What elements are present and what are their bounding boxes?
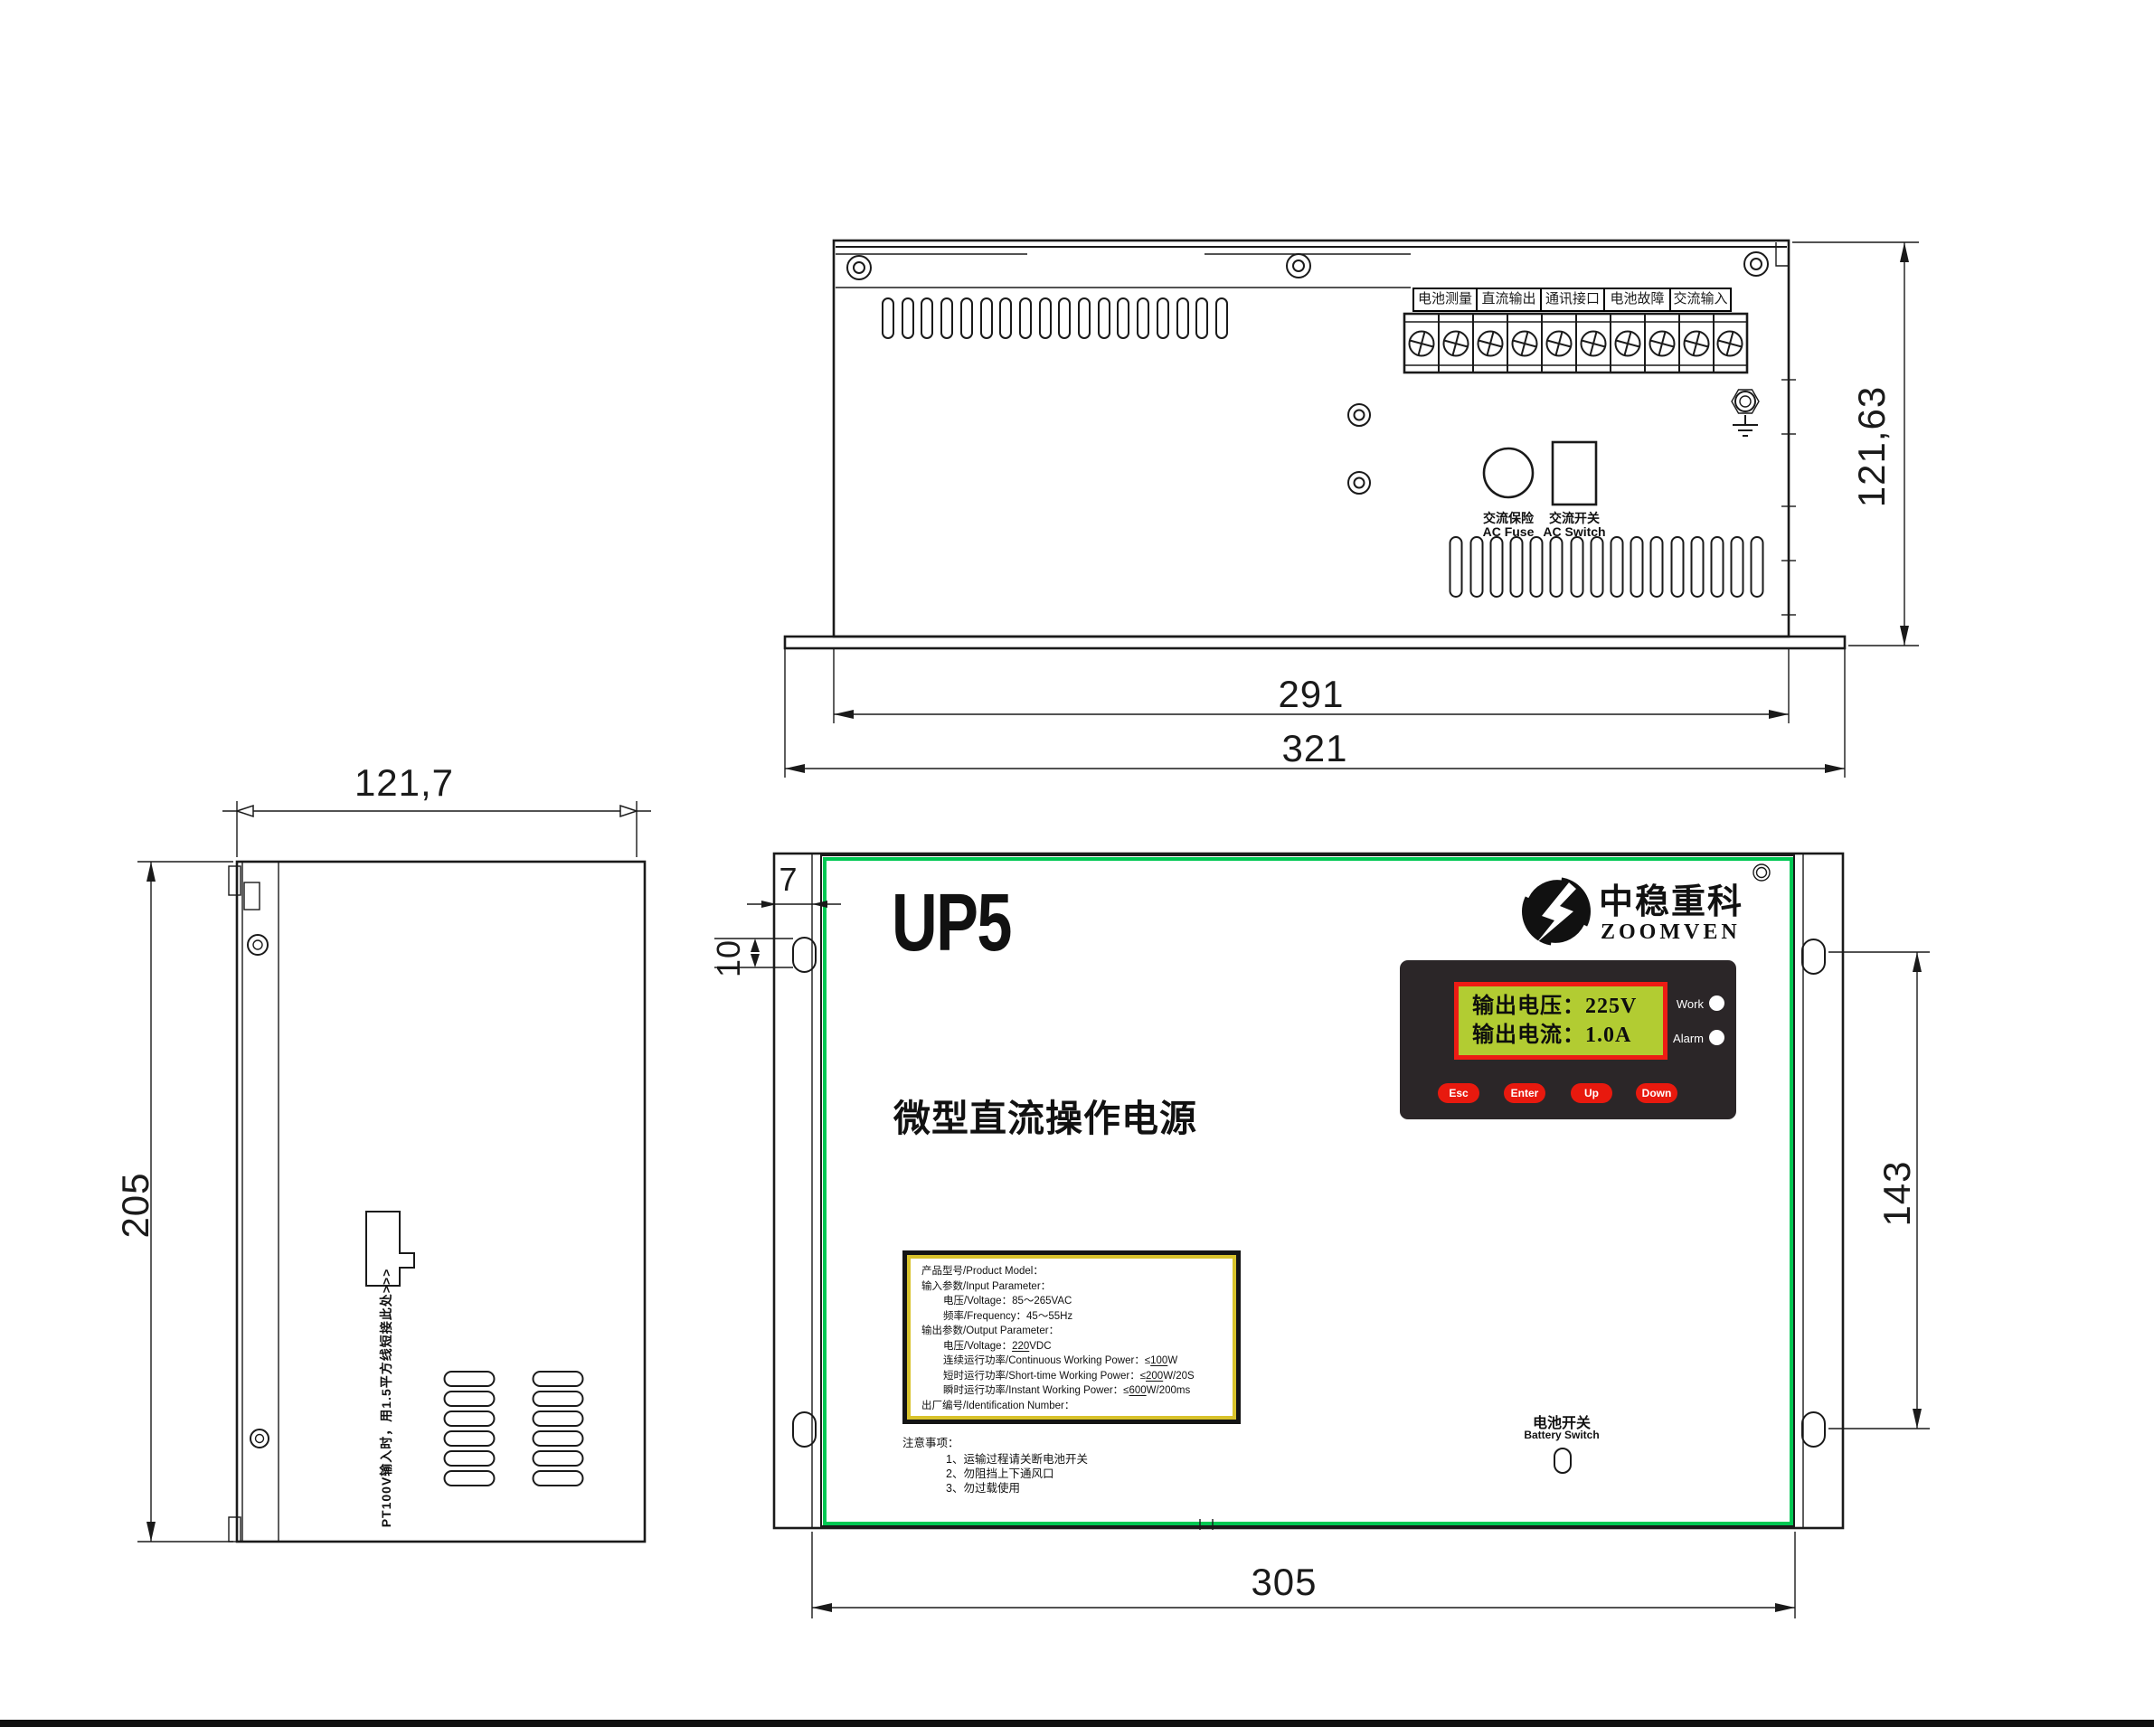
- spec-line: 电压/Voltage：220VDC: [921, 1339, 1236, 1354]
- dim-label-side-height: 205: [114, 1151, 157, 1260]
- technical-drawing-canvas: 电池测量 直流输出 通讯接口 电池故障 交流输入 交流保险 AC Fuse 交流…: [0, 0, 2154, 1736]
- spec-line: 输出参数/Output Parameter：: [921, 1324, 1236, 1339]
- spec-line: 电压/Voltage：85～265VAC: [921, 1294, 1236, 1309]
- terminal-label-comm-port: 通讯接口: [1540, 288, 1605, 312]
- screw-icon: [250, 1429, 269, 1448]
- up-button: Up: [1571, 1083, 1612, 1103]
- spec-line: 短时运行功率/Short-time Working Power：≤200W/20…: [921, 1369, 1236, 1384]
- ground-icon: [1732, 390, 1759, 436]
- screw-icon: [248, 935, 268, 955]
- battery-switch-label-en: Battery Switch: [1512, 1429, 1611, 1441]
- top-vent-slots: [883, 298, 1227, 338]
- dim-label-mount-height: 143: [1875, 1139, 1919, 1248]
- notes-title: 注意事项：: [902, 1436, 959, 1450]
- esc-button: Esc: [1438, 1083, 1479, 1103]
- side-vent-slots: [445, 1372, 583, 1486]
- alarm-led-label: Alarm: [1644, 1032, 1704, 1045]
- front-view-dimensions: [714, 901, 1930, 1618]
- brand-name-cn: 中稳重科: [1599, 884, 1743, 920]
- ac-switch-label-cn: 交流开关: [1520, 512, 1629, 525]
- dim-label-mount-width: 305: [1230, 1561, 1338, 1604]
- alarm-led: [1709, 1030, 1724, 1045]
- note-item: 2、勿阻挡上下通风口: [946, 1467, 1088, 1481]
- product-title: 微型直流操作电源: [893, 1098, 1197, 1139]
- terminal-label-ac-input: 交流输入: [1669, 288, 1732, 312]
- enter-button: Enter: [1504, 1083, 1545, 1103]
- mounting-slot: [1802, 939, 1825, 974]
- ac-switch-rect: [1553, 442, 1596, 505]
- note-item: 1、运输过程请关断电池开关: [946, 1452, 1088, 1467]
- spec-line: 瞬时运行功率/Instant Working Power：≤600W/200ms: [921, 1383, 1236, 1399]
- terminal-label-dc-output: 直流输出: [1476, 288, 1542, 312]
- product-spec-label: 产品型号/Product Model： 输入参数/Input Parameter…: [902, 1250, 1241, 1424]
- dim-label-flange: 7: [770, 861, 807, 899]
- notes-list: 1、运输过程请关断电池开关 2、勿阻挡上下通风口 3、勿过载使用: [946, 1452, 1088, 1495]
- dim-label-overall-width: 321: [1261, 727, 1369, 770]
- panel-hole: [1753, 864, 1770, 881]
- screw-icon: [1287, 254, 1310, 278]
- screw-icon: [1348, 472, 1370, 494]
- top-view-base-plate: [785, 637, 1845, 648]
- mounting-slot: [1802, 1412, 1825, 1447]
- spec-line: 连续运行功率/Continuous Working Power：≤100W: [921, 1354, 1236, 1369]
- bottom-vent-slots: [1450, 537, 1763, 597]
- dim-label-slot: 10: [710, 931, 748, 986]
- model-name: UP5: [892, 892, 1011, 955]
- ac-switch-label-en: AC Switch: [1520, 525, 1629, 539]
- lcd-line-current: 输出电流：1.0A: [1472, 1021, 1663, 1050]
- screw-icon: [1744, 252, 1768, 276]
- screw-icon: [1348, 404, 1370, 426]
- work-led-label: Work: [1644, 997, 1704, 1011]
- spec-line: 产品型号/Product Model：: [921, 1264, 1236, 1279]
- spec-line: 出厂编号/Identification Number：: [921, 1399, 1236, 1414]
- lcd-screen: 输出电压：225V 输出电流：1.0A: [1454, 982, 1667, 1060]
- spec-line: 输入参数/Input Parameter：: [921, 1279, 1236, 1295]
- dim-label-body-width: 291: [1257, 673, 1365, 716]
- screw-icon: [847, 256, 871, 279]
- battery-switch-hole: [1554, 1448, 1571, 1473]
- lcd-line-voltage: 输出电压：225V: [1472, 992, 1663, 1021]
- side-view-linework: [229, 862, 645, 1542]
- ac-switch-label: 交流开关 AC Switch: [1520, 512, 1629, 539]
- ac-fuse-circle: [1484, 448, 1533, 497]
- spec-line: 频率/Frequency：45～55Hz: [921, 1309, 1236, 1325]
- side-view-note: PT100V输入时，用1.5平方线短接此处>>>: [377, 1262, 395, 1533]
- work-led: [1709, 995, 1724, 1011]
- dim-label-depth: 121,63: [1850, 374, 1894, 519]
- terminal-label-battery-fault: 电池故障: [1603, 288, 1671, 312]
- terminal-label-battery-measure: 电池测量: [1412, 288, 1478, 312]
- brand-logo-emblem: [1522, 877, 1591, 946]
- note-item: 3、勿过载使用: [946, 1481, 1088, 1495]
- down-button: Down: [1636, 1083, 1677, 1103]
- sheet-border-line: [0, 1720, 2154, 1727]
- brand-name-en: ZOOMVEN: [1601, 920, 1741, 944]
- display-panel: 输出电压：225V 输出电流：1.0A Work Alarm Esc Enter…: [1400, 960, 1736, 1119]
- terminal-strip: [1404, 314, 1747, 373]
- dim-label-side-width: 121,7: [341, 761, 468, 805]
